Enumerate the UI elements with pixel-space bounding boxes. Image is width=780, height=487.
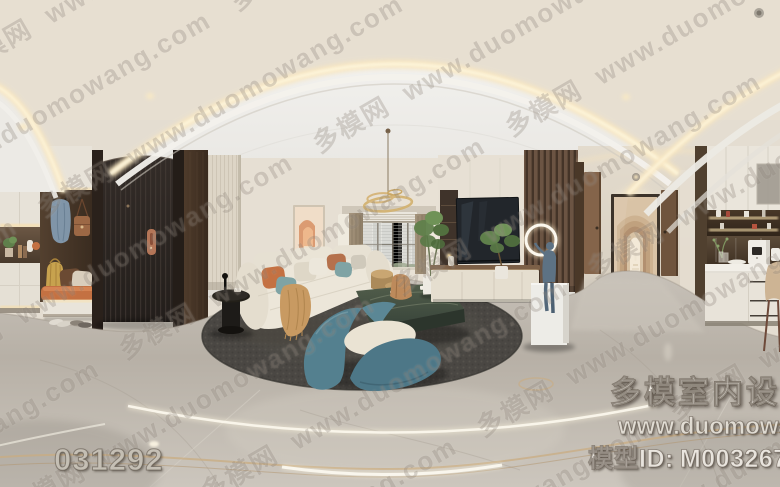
downlight: [622, 94, 630, 100]
peephole: [127, 205, 130, 208]
brand-watermark: 多模室内设计: [610, 377, 780, 408]
photo-id: 031292: [54, 444, 163, 475]
door-frame-left: [92, 150, 103, 332]
model-id-label: 模型ID:: [588, 445, 674, 473]
smart-lock: [147, 229, 156, 255]
downlight: [146, 93, 154, 99]
wood-wall-panel: [184, 150, 208, 332]
website-watermark: www.duomowang.com: [618, 415, 780, 439]
model-id: 模型ID:M0032670: [588, 447, 780, 472]
entry-door: [95, 156, 185, 331]
fluted-panel: [208, 155, 241, 290]
ac-vent: [361, 212, 417, 222]
downlight: [18, 124, 28, 131]
coffee-machine: [748, 240, 770, 264]
door-frame-right: [173, 150, 184, 332]
hanging-jacket: [51, 199, 71, 243]
vase-decor: [390, 274, 412, 300]
kettle: [771, 248, 780, 261]
panorama-image: 多模网 www.duomowang.com 多模网 www.duomowang.…: [0, 0, 780, 487]
hall-door-left: [584, 172, 601, 274]
wine-glass: [719, 252, 723, 262]
model-id-value: M0032670: [680, 445, 780, 473]
